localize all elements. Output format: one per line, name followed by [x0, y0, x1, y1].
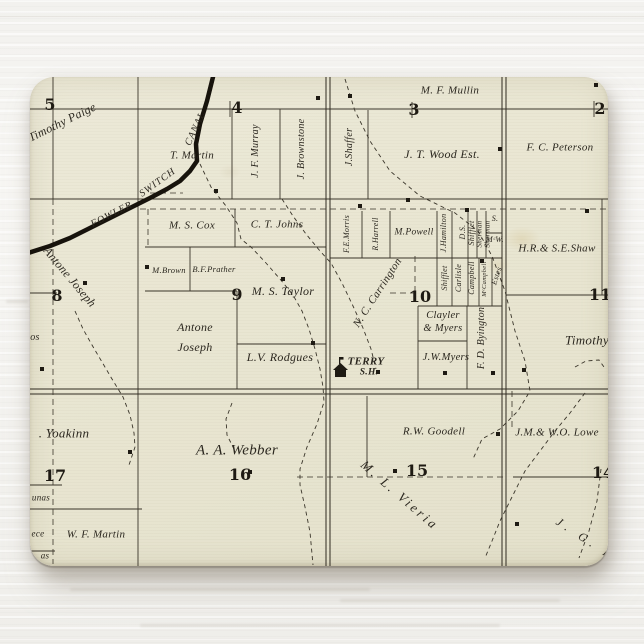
map-label-s: S.	[492, 215, 499, 223]
section-number-14: 14	[592, 465, 608, 481]
map-label-r-w-goodell: R.W. Goodell	[403, 427, 465, 438]
building-square-marker	[515, 522, 519, 526]
map-label-j-f-murray: J. F. Murray	[251, 124, 261, 177]
map-label-joseph: Joseph	[177, 341, 212, 353]
map-label-h-r-s-e-shaw: H.R.& S.E.Shaw	[518, 244, 595, 255]
wood-streak	[6, 300, 28, 303]
map-label-j-shaffer: J.Shaffer	[345, 128, 355, 167]
wood-groove	[0, 16, 644, 18]
map-label-f-e-morris: F.E.Morris	[343, 215, 351, 253]
building-square-marker	[311, 341, 315, 345]
map-label-m-w: MᶜW.	[486, 236, 504, 244]
building-square-marker	[443, 371, 447, 375]
map-label-carlisle: Carlisle	[455, 264, 463, 292]
map-label-j-brownstone: J. Brownstone	[297, 119, 307, 180]
building-square-marker	[393, 469, 397, 473]
map-label-w-f-martin: W. F. Martin	[67, 530, 126, 541]
building-square-marker	[128, 450, 132, 454]
map-label-timothy: Timothy	[565, 334, 608, 347]
building-square-marker	[498, 147, 502, 151]
building-square-marker	[83, 281, 87, 285]
map-label-m-powell: M.Powell	[394, 228, 433, 238]
building-square-marker	[480, 259, 484, 263]
stream-dashed-lines	[75, 79, 604, 565]
wood-groove	[0, 638, 644, 640]
building-square-marker	[145, 265, 149, 269]
wood-streak	[340, 599, 560, 602]
section-grid	[30, 77, 608, 566]
building-square-marker	[281, 277, 285, 281]
map-label-f-c-peterson: F. C. Peterson	[527, 143, 594, 154]
map-label-l-v-rodgues: L.V. Rodgues	[247, 351, 313, 363]
mousepad: 543289101117161514Timothy PaigeT. Martin…	[30, 77, 608, 566]
map-label-a-a-webber: A. A. Webber	[196, 444, 278, 459]
map-label-m-brown: M.Brown	[152, 266, 186, 275]
building-square-marker	[316, 96, 320, 100]
building-square-marker	[406, 198, 410, 202]
building-square-marker	[248, 470, 252, 474]
map-label-m-s-cox: M. S. Cox	[169, 221, 215, 232]
map-label-m-campbell: MᶜCampbell	[482, 261, 489, 296]
wood-streak	[70, 588, 370, 591]
building-square-marker	[594, 83, 598, 87]
map-label-ece: ece	[32, 530, 45, 539]
map-label-f-d-byington: F. D. Byington	[477, 307, 487, 369]
map-label-j-w-myers: J.W.Myers	[423, 353, 470, 364]
map-label-m-s-taylor: M. S. Taylor	[252, 285, 315, 297]
section-number-10: 10	[409, 289, 431, 305]
building-square-marker	[376, 370, 380, 374]
building-square-marker	[358, 204, 362, 208]
section-number-11: 11	[589, 287, 608, 303]
map-label-r-harrell: R.Harrell	[372, 217, 380, 250]
section-number-5: 5	[44, 97, 55, 113]
map-label-campbell: Campbell	[468, 261, 476, 295]
map-label-d-s: D.S.	[459, 225, 467, 240]
map-label-clayler: Clayler	[426, 311, 460, 322]
section-number-9: 9	[231, 287, 242, 303]
building-square-marker	[348, 94, 352, 98]
section-number-17: 17	[44, 468, 66, 484]
building-square-marker	[214, 189, 218, 193]
plat-map-linework	[30, 77, 608, 566]
building-square-marker	[465, 208, 469, 212]
map-label-terry: TERRY	[348, 357, 385, 368]
map-label-yoakinn: . Yoakinn	[39, 427, 90, 440]
wood-groove	[0, 608, 644, 610]
map-label-myers: & Myers	[423, 324, 462, 335]
section-number-2: 2	[594, 101, 605, 117]
schoolhouse-icon	[333, 357, 348, 377]
map-label-j-t-wood-est: J. T. Wood Est.	[404, 148, 480, 160]
section-number-15: 15	[406, 463, 428, 479]
section-number-8: 8	[51, 288, 62, 304]
map-label-j-hamilton: J.Hamilton	[440, 214, 448, 253]
map-label-shifflet: Shifflet	[441, 265, 449, 290]
map-label-m-f-mullin: M. F. Mullin	[421, 86, 479, 97]
map-label-j-m-w-o-lowe: J.M.& W.O. Lowe	[515, 428, 599, 439]
map-label-as: as	[41, 552, 50, 561]
map-label-sherman: Sherman	[477, 221, 484, 248]
map-label-os: os	[30, 333, 40, 343]
building-square-marker	[40, 367, 44, 371]
product-photo-scene: 543289101117161514Timothy PaigeT. Martin…	[0, 0, 644, 644]
building-square-marker	[585, 209, 589, 213]
section-number-3: 3	[408, 102, 419, 118]
map-label-unas: unas	[32, 494, 50, 503]
wood-streak	[140, 624, 500, 627]
map-label-c-t-johns: C. T. Johns	[251, 220, 304, 231]
map-label-b-f-prather: B.F.Prather	[192, 265, 235, 274]
map-label-antone: Antone	[177, 321, 213, 333]
section-number-4: 4	[231, 100, 242, 116]
map-label-t-martin: T. Martin	[170, 151, 214, 162]
building-square-marker	[522, 368, 526, 372]
road-lines	[30, 77, 608, 566]
building-square-marker	[491, 371, 495, 375]
building-square-marker	[496, 432, 500, 436]
